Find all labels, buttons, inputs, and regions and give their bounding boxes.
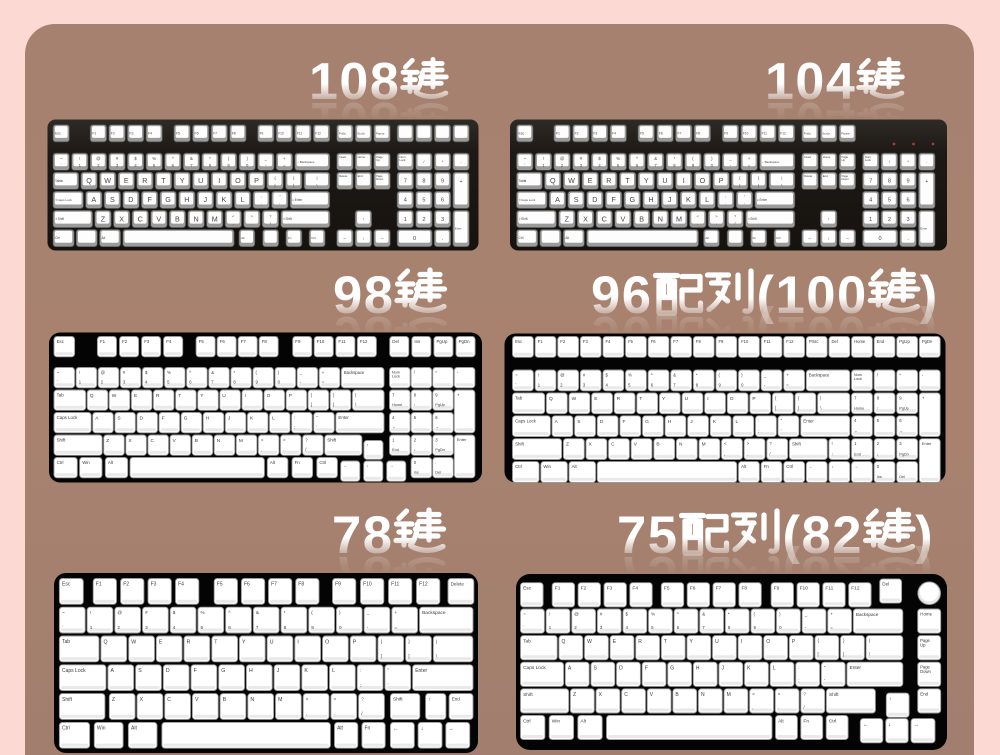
- svg-text:F7: F7: [241, 339, 247, 344]
- svg-text:+: +: [457, 393, 460, 398]
- svg-text:~: ~: [523, 612, 526, 617]
- svg-text:Win: Win: [552, 718, 561, 724]
- svg-text:4: 4: [404, 198, 407, 204]
- svg-text:M: M: [239, 438, 243, 444]
- svg-text:9: 9: [441, 179, 444, 185]
- svg-text:<: <: [752, 691, 755, 696]
- svg-text:Shift: Shift: [393, 697, 403, 703]
- svg-text:B: B: [639, 214, 644, 223]
- svg-text:J: J: [277, 668, 280, 674]
- svg-text:Enter: Enter: [455, 227, 462, 231]
- svg-text:F4: F4: [148, 132, 152, 136]
- svg-text:~: ~: [62, 610, 65, 615]
- svg-text:X: X: [583, 214, 588, 223]
- svg-text::: :: [725, 194, 726, 199]
- svg-text:4: 4: [869, 198, 872, 204]
- svg-text:!: !: [543, 156, 544, 161]
- svg-text::: :: [261, 194, 262, 199]
- svg-text:↑: ↑: [428, 697, 431, 703]
- svg-text:←: ←: [343, 236, 348, 241]
- svg-text:1: 1: [90, 625, 93, 630]
- svg-text:Shift: Shift: [829, 692, 839, 698]
- svg-text:⇧Caps Lock: ⇧Caps Lock: [55, 198, 72, 202]
- svg-text:+: +: [922, 396, 925, 401]
- svg-text:Lock: Lock: [392, 375, 400, 379]
- svg-text:G: G: [184, 416, 188, 422]
- svg-text:E: E: [594, 396, 597, 402]
- svg-text:F2: F2: [122, 339, 128, 344]
- svg-text:F5: F5: [664, 586, 670, 592]
- svg-text:Down: Down: [842, 177, 850, 181]
- svg-text:C: C: [151, 438, 155, 444]
- svg-text:H: H: [668, 419, 672, 425]
- svg-text:⇧Shift: ⇧Shift: [55, 217, 64, 221]
- svg-text:→: →: [854, 464, 858, 469]
- svg-text:+: +: [925, 179, 928, 185]
- svg-text:→: →: [914, 722, 919, 728]
- svg-text:Alt: Alt: [102, 236, 106, 240]
- svg-text:B: B: [656, 442, 659, 448]
- svg-text:F1: F1: [96, 582, 102, 588]
- svg-text:A: A: [555, 195, 560, 204]
- svg-text:7: 7: [869, 179, 872, 185]
- svg-text:ScrLk: ScrLk: [822, 131, 830, 135]
- svg-text:T: T: [161, 176, 166, 185]
- svg-text:M: M: [676, 214, 682, 223]
- svg-text:,: ,: [724, 451, 725, 456]
- svg-text:F1: F1: [555, 586, 561, 592]
- svg-text:Caps Lock: Caps Lock: [523, 665, 546, 671]
- svg-text:End: End: [920, 691, 928, 696]
- svg-text:L: L: [773, 665, 776, 671]
- svg-text:Enter: Enter: [850, 665, 862, 671]
- svg-text:↵Enter: ↵Enter: [757, 198, 768, 202]
- svg-text:^: ^: [189, 370, 191, 375]
- svg-text:Shift: Shift: [515, 441, 525, 446]
- svg-text:Del: Del: [899, 475, 905, 479]
- svg-text:End: End: [854, 452, 861, 456]
- svg-text:]: ]: [293, 182, 294, 187]
- svg-text:Del: Del: [832, 339, 838, 344]
- svg-text:_: _: [366, 610, 370, 615]
- svg-text:Ctrl: Ctrl: [57, 460, 64, 465]
- svg-text:|: |: [869, 638, 870, 643]
- svg-text:H: H: [696, 665, 700, 671]
- svg-text:F3: F3: [144, 339, 150, 344]
- svg-text:N: N: [193, 214, 198, 223]
- svg-text:Alt: Alt: [572, 464, 578, 469]
- svg-text:.: .: [747, 451, 748, 456]
- svg-text:Enter: Enter: [922, 441, 932, 446]
- svg-text:Lock: Lock: [865, 158, 872, 162]
- svg-text:O: O: [267, 393, 271, 399]
- svg-text:K: K: [686, 195, 691, 204]
- svg-text:U: U: [198, 176, 203, 185]
- svg-text:Y: Y: [180, 176, 185, 185]
- svg-text:M: M: [727, 692, 731, 698]
- svg-text:F: F: [645, 665, 648, 671]
- svg-text:↓: ↓: [366, 463, 368, 468]
- svg-text:↑: ↑: [877, 407, 879, 411]
- svg-text:;: ;: [294, 425, 295, 430]
- svg-text:M: M: [212, 214, 218, 223]
- svg-text:;: ;: [758, 428, 759, 433]
- svg-text:&: &: [190, 156, 193, 161]
- svg-text:5: 5: [888, 198, 891, 204]
- svg-text:Down: Down: [376, 177, 384, 181]
- svg-text:F2: F2: [581, 586, 587, 592]
- svg-text:P: P: [752, 396, 755, 402]
- svg-text:W: W: [587, 639, 592, 645]
- svg-text:8: 8: [284, 625, 287, 630]
- svg-text:S: S: [110, 195, 115, 204]
- svg-text:Ctrl: Ctrl: [62, 726, 70, 732]
- svg-text:8: 8: [888, 179, 891, 185]
- svg-text:%: %: [167, 370, 171, 375]
- svg-text:Lock: Lock: [854, 377, 862, 381]
- svg-text:Home: Home: [854, 407, 864, 411]
- svg-text:E: E: [588, 176, 593, 185]
- svg-text:Del: Del: [392, 339, 399, 344]
- svg-text:!: !: [832, 441, 833, 446]
- svg-text:,: ,: [306, 711, 307, 716]
- svg-text:T: T: [664, 639, 667, 645]
- svg-text:Home: Home: [823, 155, 831, 159]
- svg-text:A: A: [111, 668, 115, 674]
- svg-text:F5: F5: [217, 582, 223, 588]
- svg-text:Enter: Enter: [457, 437, 467, 442]
- svg-text:⇧Shift: ⇧Shift: [283, 217, 292, 221]
- svg-text:↑: ↑: [889, 697, 892, 703]
- svg-text:Ctrl: Ctrl: [523, 718, 530, 724]
- svg-text:Esc: Esc: [55, 132, 61, 136]
- svg-text:Pause: Pause: [376, 131, 385, 135]
- svg-text:]: ]: [798, 406, 799, 411]
- svg-text:C: C: [138, 214, 143, 223]
- svg-text:PgUp: PgUp: [899, 339, 910, 344]
- svg-text:F8: F8: [298, 582, 304, 588]
- svg-text:X: X: [140, 697, 144, 703]
- svg-text:F: F: [611, 195, 616, 204]
- svg-text:O: O: [730, 396, 734, 402]
- svg-text:Backspace: Backspace: [856, 612, 879, 617]
- svg-text:A: A: [91, 195, 96, 204]
- svg-text:F1: F1: [100, 339, 106, 344]
- svg-text:F8: F8: [262, 339, 268, 344]
- svg-text:F6: F6: [690, 586, 696, 592]
- svg-text:F10: F10: [363, 582, 372, 588]
- svg-text:←: ←: [863, 722, 868, 728]
- svg-text:6: 6: [441, 198, 444, 204]
- svg-text:Shift: Shift: [57, 438, 67, 443]
- svg-text:X: X: [119, 214, 124, 223]
- svg-text:D: D: [619, 665, 623, 671]
- svg-text:F8: F8: [696, 339, 702, 344]
- svg-text:Z: Z: [106, 438, 109, 444]
- svg-text:Pause: Pause: [841, 131, 850, 135]
- svg-text:Q: Q: [104, 639, 108, 645]
- svg-text:F7: F7: [213, 132, 217, 136]
- svg-text:,: ,: [261, 447, 262, 452]
- svg-text:U: U: [715, 639, 719, 645]
- svg-text:E: E: [159, 639, 163, 645]
- svg-text:Esc: Esc: [515, 339, 522, 344]
- svg-text:Delete: Delete: [451, 581, 465, 586]
- svg-text:W: W: [104, 176, 111, 185]
- svg-text:I: I: [741, 639, 742, 645]
- svg-text:R: R: [187, 639, 191, 645]
- svg-text:3: 3: [441, 217, 444, 223]
- svg-text:+: +: [460, 179, 463, 185]
- svg-text:U: U: [662, 176, 667, 185]
- svg-text:F8: F8: [742, 586, 748, 592]
- svg-text:C: C: [611, 442, 615, 448]
- svg-text:F11: F11: [338, 339, 346, 344]
- svg-text:@: @: [574, 612, 579, 617]
- svg-text:F4: F4: [166, 339, 172, 344]
- svg-text:Enter: Enter: [338, 415, 349, 420]
- svg-text::: :: [798, 665, 799, 670]
- svg-text:*: *: [728, 612, 730, 617]
- svg-text:PgDn: PgDn: [899, 452, 909, 456]
- svg-text:V: V: [621, 214, 626, 223]
- svg-text:Ctrl: Ctrl: [319, 460, 326, 465]
- svg-text:Home: Home: [392, 403, 402, 407]
- svg-text:F8: F8: [232, 132, 236, 136]
- svg-text:F7: F7: [716, 586, 722, 592]
- svg-text:&: &: [256, 610, 259, 615]
- svg-text:,: ,: [697, 221, 698, 226]
- svg-text:O: O: [766, 639, 770, 645]
- svg-text:F: F: [147, 195, 152, 204]
- svg-text:F9: F9: [295, 339, 301, 344]
- svg-text:<: <: [306, 696, 309, 701]
- svg-text:7: 7: [404, 179, 407, 185]
- svg-text:Ctrl: Ctrl: [55, 236, 60, 240]
- svg-text:ScrLk: ScrLk: [357, 131, 365, 135]
- svg-text:3: 3: [907, 217, 910, 223]
- svg-text:Z: Z: [566, 442, 569, 448]
- svg-text:Enter: Enter: [803, 418, 814, 423]
- svg-text:P: P: [289, 393, 292, 399]
- svg-text:↑: ↑: [414, 403, 416, 407]
- svg-text:Ctrl: Ctrl: [829, 718, 836, 724]
- svg-text:K: K: [304, 668, 308, 674]
- svg-text:G: G: [670, 665, 674, 671]
- svg-text:N: N: [701, 692, 705, 698]
- svg-text:U: U: [685, 396, 689, 402]
- svg-text:Num: Num: [854, 373, 862, 377]
- svg-text:Z: Z: [573, 692, 576, 698]
- svg-text:Z: Z: [101, 214, 106, 223]
- svg-text:%: %: [201, 610, 205, 615]
- svg-text:>: >: [778, 691, 781, 696]
- svg-text:↑: ↑: [367, 443, 369, 448]
- svg-text:⇧Shift: ⇧Shift: [519, 217, 528, 221]
- svg-text:F6: F6: [651, 339, 657, 344]
- svg-text:Alt: Alt: [131, 726, 137, 732]
- svg-text:Tab: Tab: [57, 393, 65, 398]
- svg-text:←Backspace: ←Backspace: [762, 160, 780, 164]
- svg-text:F9: F9: [260, 131, 264, 135]
- svg-text:]: ]: [408, 654, 409, 659]
- svg-text:B: B: [223, 697, 227, 703]
- svg-text:^: ^: [651, 372, 653, 377]
- svg-text:F: F: [623, 419, 626, 425]
- svg-text:PgUp: PgUp: [899, 407, 909, 411]
- svg-text:6: 6: [907, 198, 910, 204]
- svg-text:⇧Caps Lock: ⇧Caps Lock: [519, 198, 536, 202]
- svg-text:L: L: [332, 668, 335, 674]
- svg-text:Insert: Insert: [804, 155, 811, 159]
- svg-text:F5: F5: [199, 339, 205, 344]
- svg-text:H: H: [648, 195, 653, 204]
- svg-text:I: I: [218, 176, 220, 185]
- svg-text:L: L: [272, 416, 275, 422]
- svg-text:T: T: [178, 393, 181, 399]
- svg-text:←: ←: [809, 464, 813, 469]
- svg-text:←Backspace: ←Backspace: [297, 160, 315, 164]
- svg-text:F6: F6: [195, 132, 199, 136]
- svg-text:P: P: [254, 176, 259, 185]
- svg-text:5: 5: [422, 198, 425, 204]
- svg-text:Del: Del: [882, 582, 889, 587]
- svg-text:R: R: [617, 396, 621, 402]
- svg-text:@: @: [96, 156, 100, 161]
- svg-text::: :: [360, 668, 361, 673]
- svg-text:Home: Home: [920, 612, 932, 617]
- svg-text:F11: F11: [391, 582, 399, 588]
- svg-text:I: I: [245, 393, 246, 399]
- svg-text:H: H: [184, 195, 189, 204]
- svg-text:Tab: Tab: [62, 639, 70, 645]
- svg-text:Alt: Alt: [580, 718, 586, 724]
- svg-text:': ': [388, 682, 389, 687]
- svg-text:F10: F10: [800, 586, 809, 592]
- svg-text:R: R: [156, 393, 160, 399]
- svg-text:Q: Q: [562, 639, 566, 645]
- svg-text:;: ;: [725, 201, 726, 206]
- svg-text:V: V: [195, 697, 199, 703]
- svg-text:F: F: [162, 416, 165, 422]
- svg-text:Alt: Alt: [241, 236, 245, 240]
- svg-text:F4: F4: [178, 582, 184, 588]
- svg-text:Delete: Delete: [804, 174, 813, 178]
- svg-text:1: 1: [404, 217, 407, 223]
- svg-text:S: S: [138, 668, 142, 674]
- svg-text:Tab⇆: Tab⇆: [519, 179, 527, 183]
- svg-text:End: End: [358, 174, 363, 178]
- svg-text:→: →: [389, 463, 393, 468]
- svg-text:C: C: [167, 697, 171, 703]
- svg-text:End: End: [392, 448, 399, 452]
- svg-text:@: @: [560, 156, 564, 161]
- svg-text:Del: Del: [435, 471, 441, 475]
- svg-text:→: →: [899, 429, 903, 433]
- svg-text:B: B: [195, 438, 198, 444]
- svg-text:PgUp: PgUp: [435, 403, 445, 407]
- svg-text:End: End: [823, 174, 828, 178]
- svg-text:7: 7: [256, 625, 259, 630]
- svg-text:Ctrl: Ctrl: [311, 236, 316, 240]
- svg-text:T: T: [625, 176, 630, 185]
- svg-text:F11: F11: [297, 131, 302, 135]
- svg-text:→: →: [448, 726, 453, 732]
- svg-text:;: ;: [798, 678, 799, 683]
- svg-text:Home: Home: [358, 155, 366, 159]
- svg-text:R: R: [638, 639, 642, 645]
- svg-text:End: End: [877, 339, 885, 344]
- svg-text:S: S: [574, 195, 579, 204]
- svg-text:9: 9: [907, 179, 910, 185]
- svg-text:P: P: [719, 176, 724, 185]
- svg-text:>: >: [334, 696, 337, 701]
- svg-text:Up: Up: [920, 643, 926, 648]
- svg-text:^: ^: [636, 156, 638, 161]
- svg-text:←: ←: [343, 463, 347, 468]
- svg-text:F12: F12: [360, 339, 368, 344]
- svg-text:S: S: [117, 416, 120, 422]
- svg-text:Home: Home: [854, 339, 866, 344]
- svg-text:F2: F2: [575, 132, 579, 136]
- svg-text:Tab: Tab: [515, 396, 523, 401]
- svg-text:0: 0: [413, 236, 416, 242]
- svg-text:F3: F3: [151, 582, 157, 588]
- svg-text:.: .: [251, 221, 252, 226]
- svg-text:Alt: Alt: [108, 460, 114, 465]
- svg-text:F4: F4: [612, 132, 616, 136]
- svg-text:F3: F3: [129, 132, 133, 136]
- svg-text:M: M: [278, 697, 282, 703]
- svg-text:F: F: [194, 668, 197, 674]
- svg-text:↵Enter: ↵Enter: [292, 198, 303, 202]
- svg-text:1: 1: [869, 217, 872, 223]
- svg-text:↑: ↑: [832, 452, 834, 456]
- svg-text:F11: F11: [762, 131, 767, 135]
- svg-text:G: G: [645, 419, 649, 425]
- svg-text:;: ;: [360, 682, 361, 687]
- svg-text:Caps Lock: Caps Lock: [515, 418, 537, 423]
- svg-text:F6: F6: [244, 582, 250, 588]
- svg-text:F12: F12: [851, 586, 860, 592]
- svg-text::: :: [758, 418, 759, 423]
- svg-text:H: H: [206, 416, 210, 422]
- svg-text:Ctrl: Ctrl: [776, 236, 781, 240]
- svg-text:F9: F9: [335, 582, 341, 588]
- svg-text:F12: F12: [315, 131, 321, 135]
- svg-text:←: ←: [808, 236, 813, 241]
- svg-text:%: %: [616, 156, 620, 161]
- svg-text:P: P: [353, 639, 357, 645]
- svg-text:U: U: [270, 639, 274, 645]
- svg-text:F5: F5: [176, 132, 180, 136]
- svg-text:F2: F2: [111, 132, 115, 136]
- svg-text:Insert: Insert: [339, 155, 346, 159]
- svg-text:L: L: [736, 419, 739, 425]
- svg-text:D: D: [166, 668, 170, 674]
- svg-text:$: $: [173, 610, 176, 615]
- svg-text:.: .: [778, 705, 779, 710]
- svg-text:D: D: [600, 419, 604, 425]
- svg-text:G: G: [165, 195, 171, 204]
- svg-text:@: @: [560, 372, 564, 377]
- svg-text:Ins: Ins: [414, 471, 419, 475]
- svg-text:Shift: Shift: [62, 697, 73, 703]
- svg-text:W: W: [572, 396, 577, 402]
- svg-text:L: L: [705, 195, 709, 204]
- svg-text:N: N: [217, 438, 221, 444]
- svg-text:↓: ↓: [877, 452, 879, 456]
